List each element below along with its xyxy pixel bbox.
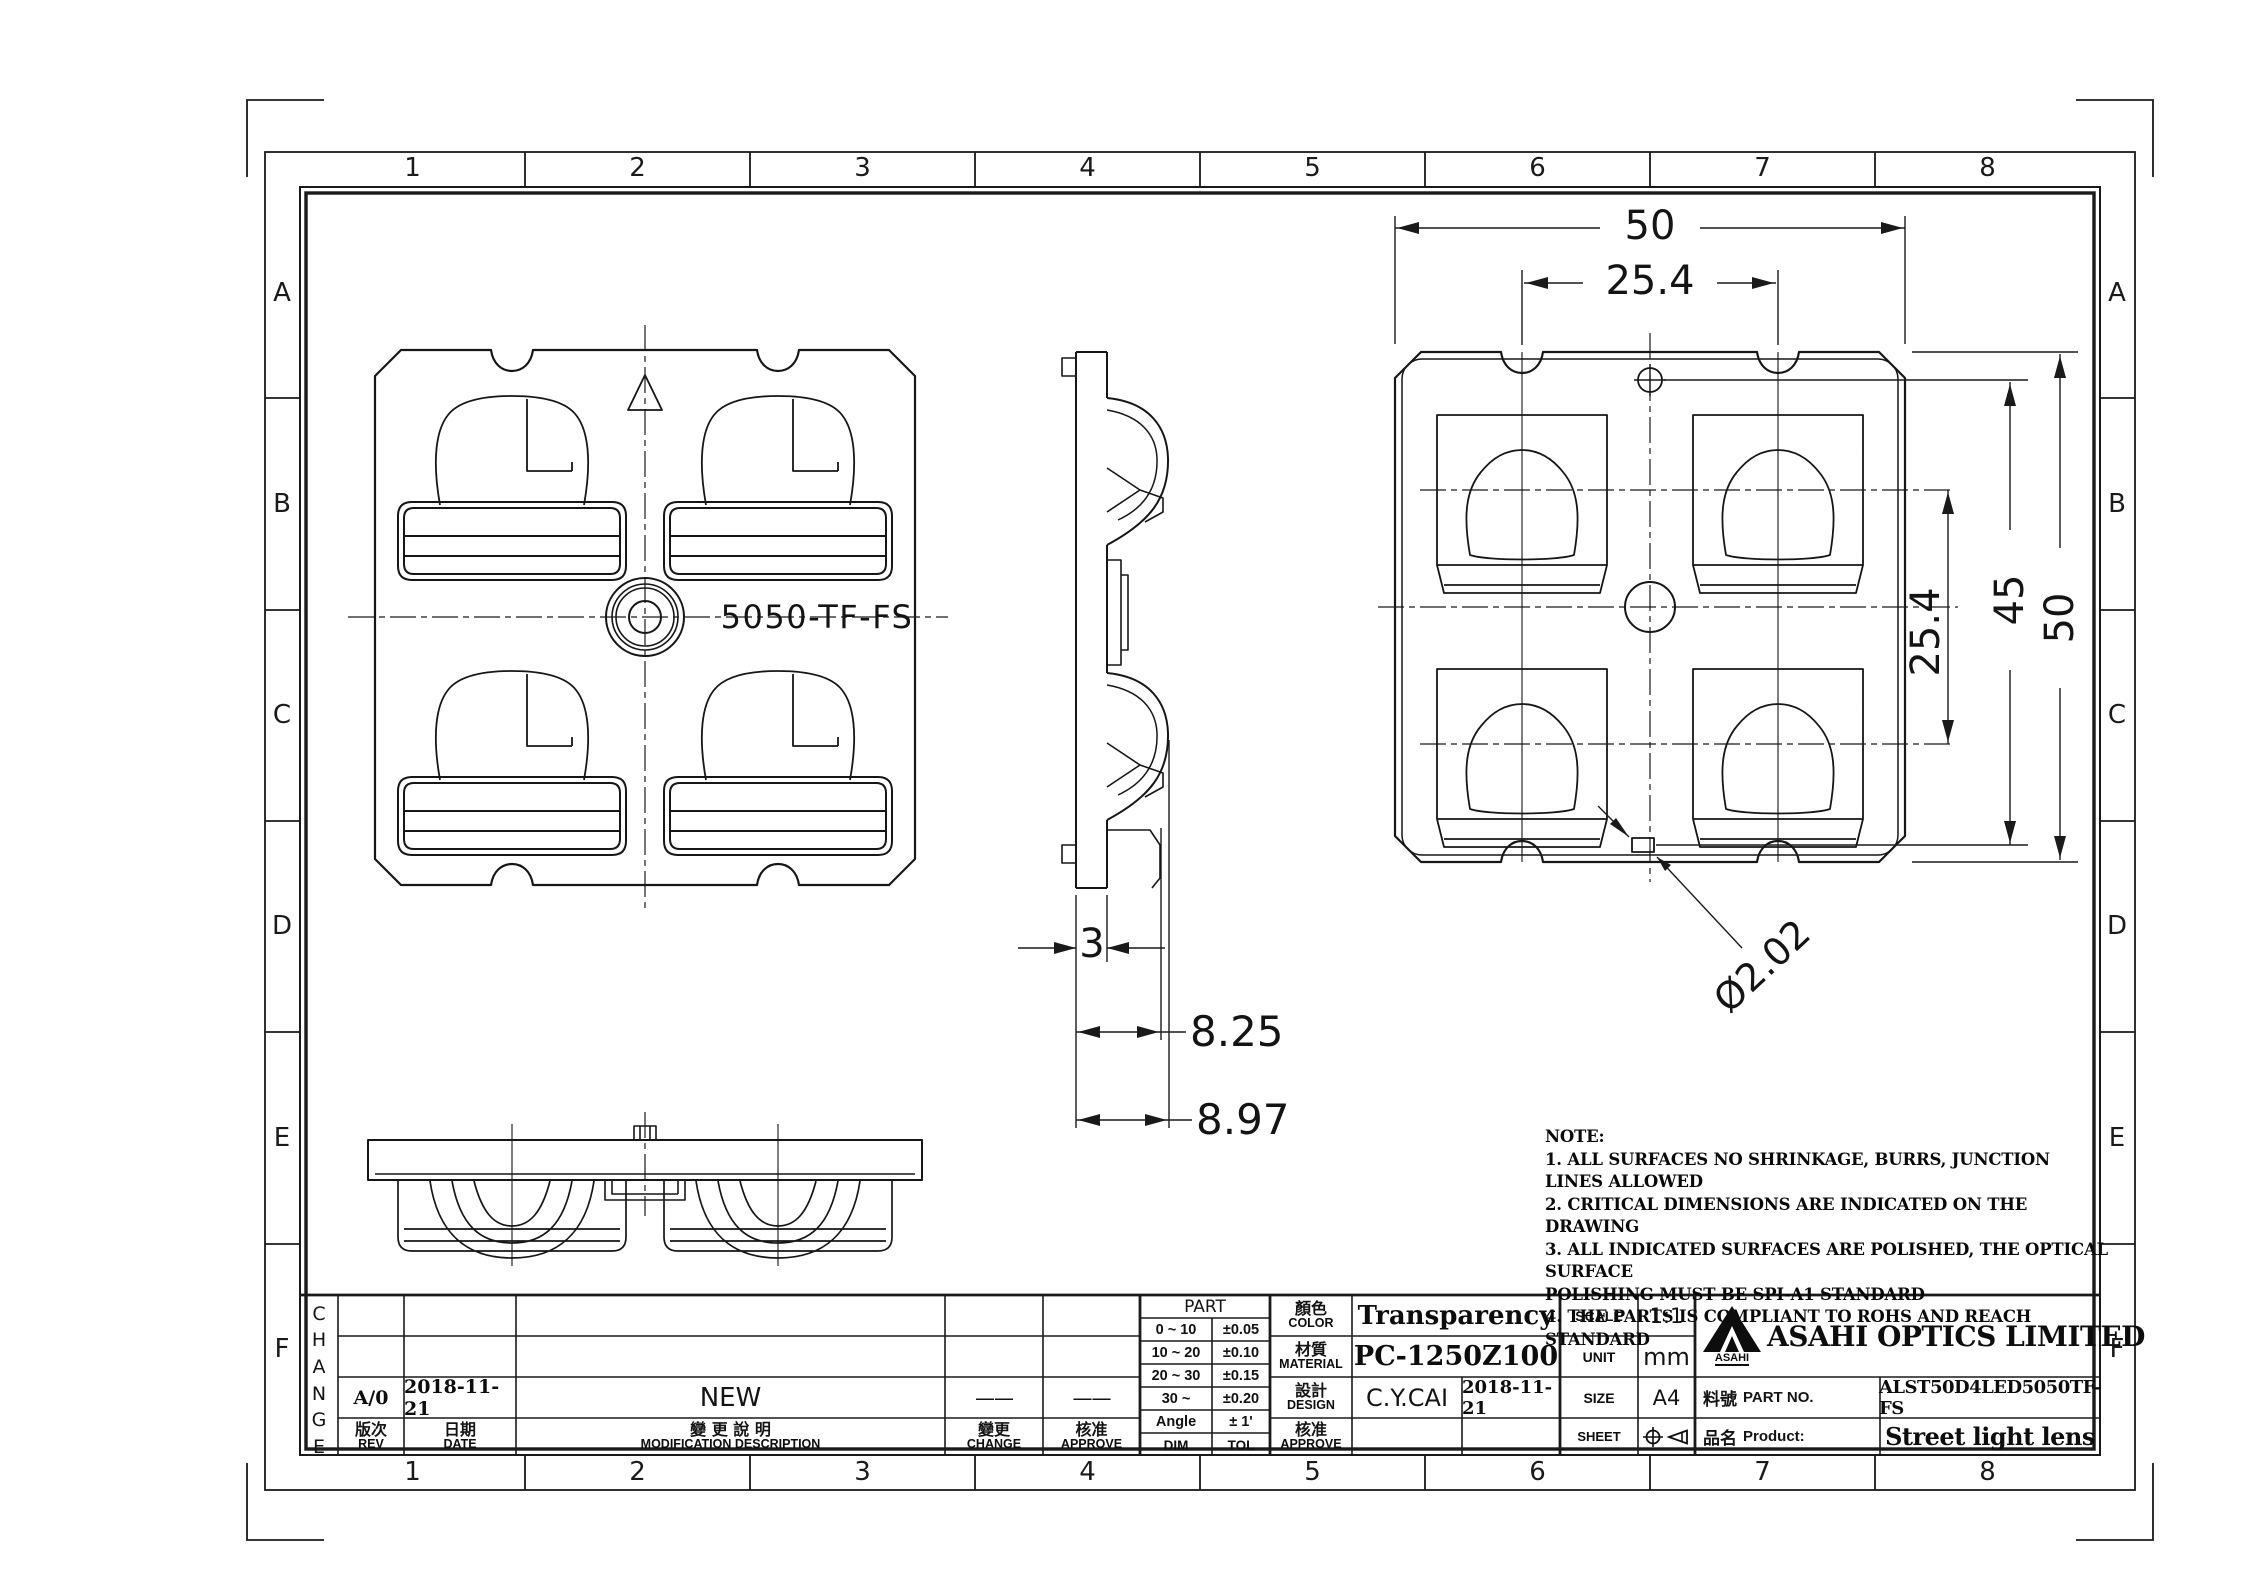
sheet-projection-symbols (1638, 1418, 1695, 1455)
tolerance-range: 30 ~ (1140, 1387, 1212, 1410)
tolerance-value: ±0.10 (1212, 1341, 1270, 1364)
material-label: 材質 MATERIAL (1270, 1336, 1352, 1377)
tolerance-range: 10 ~ 20 (1140, 1341, 1212, 1364)
mountain-logo-icon (1703, 1306, 1761, 1352)
front-view-part-label: 5050-TF-FS (698, 599, 936, 635)
note-line: 3. ALL INDICATED SURFACES ARE POLISHED, … (1545, 1239, 2110, 1284)
rev-header-zh: 版次 (355, 1422, 387, 1439)
tolerance-range: Angle (1140, 1410, 1212, 1433)
dim-pitch-horizontal: 25.4 (1583, 261, 1717, 301)
zone-column-label-top: 6 (1425, 149, 1650, 187)
zone-row-label-left: D (263, 821, 301, 1032)
zone-column-label-bottom: 1 (300, 1453, 525, 1491)
rev-header-en: REV (358, 1438, 384, 1451)
part-no-label: 料號 PART NO. (1695, 1377, 1880, 1418)
company-name: ASAHI OPTICS LIMITED (1767, 1320, 2145, 1353)
unit-value: mm (1638, 1336, 1695, 1377)
design-label-en: DESIGN (1287, 1399, 1335, 1412)
zone-column-label-top: 4 (975, 149, 1200, 187)
zone-column-label-top: 2 (525, 149, 750, 187)
zone-row-label-right: A (2098, 187, 2136, 398)
revision-header-change: 變更 CHANGE (945, 1418, 1043, 1455)
zone-column-label-bottom: 6 (1425, 1453, 1650, 1491)
design-label-zh: 設計 (1295, 1383, 1327, 1400)
tolerance-value: ±0.15 (1212, 1364, 1270, 1387)
product-value: Street light lens (1880, 1418, 2100, 1455)
notes-title: NOTE: (1545, 1126, 2110, 1149)
approve-name (1352, 1418, 1462, 1455)
change-header-zh: 變更 (978, 1422, 1010, 1439)
zone-column-label-bottom: 5 (1200, 1453, 1425, 1491)
approve-header-en: APPROVE (1061, 1438, 1122, 1451)
scale-label: SCALE (1560, 1295, 1638, 1336)
approve-label-zh: 核准 (1295, 1422, 1327, 1439)
change-letter: C (312, 1305, 325, 1324)
revision-header-approve: 核准 APPROVE (1043, 1418, 1140, 1455)
dim-step-depth: 8.25 (1190, 1008, 1330, 1054)
tolerance-range: 0 ~ 10 (1140, 1318, 1212, 1341)
tolerance-value: ±0.20 (1212, 1387, 1270, 1410)
projection-cone-icon (1667, 1429, 1691, 1445)
material-label-zh: 材質 (1295, 1342, 1327, 1359)
zone-row-label-right: B (2098, 398, 2136, 609)
dim-thickness: 3 (1072, 924, 1112, 964)
size-value: A4 (1638, 1377, 1695, 1418)
color-label-zh: 顏色 (1295, 1301, 1327, 1318)
desc-header-zh: 變 更 說 明 (690, 1422, 771, 1439)
revision-change: —— (945, 1377, 1043, 1418)
revision-rev: A/0 (338, 1377, 404, 1418)
projection-target-icon (1643, 1427, 1663, 1447)
logo-text: ASAHI (1715, 1352, 1749, 1366)
zone-column-label-top: 8 (1875, 149, 2100, 187)
zone-row-label-right: C (2098, 610, 2136, 821)
dim-overall-height: 50 (2042, 548, 2078, 688)
revision-approve: —— (1043, 1377, 1140, 1418)
zone-row-label-right: E (2098, 1032, 2136, 1243)
asahi-logo: ASAHI (1703, 1306, 1761, 1366)
engineering-drawing-sheet: 50 25.4 25.4 45 50 Ø2.02 3 8.25 8.97 505… (0, 0, 2245, 1586)
zone-column-label-top: 3 (750, 149, 975, 187)
approve-date (1462, 1418, 1560, 1455)
zone-row-label-right: D (2098, 821, 2136, 1032)
dim-overall-depth: 8.97 (1196, 1096, 1336, 1142)
zone-column-label-bottom: 4 (975, 1453, 1200, 1491)
change-letter: N (312, 1385, 326, 1404)
change-letter: A (313, 1358, 326, 1377)
date-header-zh: 日期 (444, 1422, 476, 1439)
part-no-label-en: PART NO. (1743, 1389, 1814, 1406)
material-value: PC-1250Z100 (1352, 1336, 1560, 1377)
approve-label-en: APPROVE (1280, 1438, 1341, 1451)
product-label-zh: 品名 (1703, 1424, 1737, 1449)
note-line: 2. CRITICAL DIMENSIONS ARE INDICATED ON … (1545, 1194, 2110, 1239)
color-label: 顏色 COLOR (1270, 1295, 1352, 1336)
dim-pitch-vertical: 25.4 (1908, 562, 1944, 702)
revision-header-rev: 版次 REV (338, 1418, 404, 1455)
zone-column-label-bottom: 2 (525, 1453, 750, 1491)
part-no-label-zh: 料號 (1703, 1385, 1737, 1410)
change-column: CHANGE (300, 1295, 338, 1467)
revision-header-date: 日期 DATE (404, 1418, 516, 1455)
revision-header-description: 變 更 說 明 MODIFICATION DESCRIPTION (516, 1418, 945, 1455)
tolerance-value: ±0.05 (1212, 1318, 1270, 1341)
part-no-value: ALST50D4LED5050TF-FS (1880, 1377, 2100, 1418)
date-header-en: DATE (443, 1438, 476, 1451)
tolerance-range: 20 ~ 30 (1140, 1364, 1212, 1387)
zone-column-label-bottom: 7 (1650, 1453, 1875, 1491)
product-label: 品名 Product: (1695, 1418, 1880, 1455)
desc-header-en: MODIFICATION DESCRIPTION (641, 1438, 821, 1451)
note-line: 1. ALL SURFACES NO SHRINKAGE, BURRS, JUN… (1545, 1149, 2110, 1194)
scale-value: 1:1 (1638, 1295, 1695, 1336)
change-letter: H (312, 1331, 326, 1350)
revision-date: 2018-11-21 (404, 1377, 516, 1418)
zone-row-label-left: F (263, 1244, 301, 1455)
design-date: 2018-11-21 (1462, 1377, 1560, 1418)
product-label-en: Product: (1743, 1428, 1805, 1445)
zone-column-label-bottom: 8 (1875, 1453, 2100, 1491)
part-tolerance-table: PART DIM TOL 0 ~ 10±0.0510 ~ 20±0.1020 ~… (1140, 1295, 1270, 1457)
size-label: SIZE (1560, 1377, 1638, 1418)
change-letter: G (312, 1411, 327, 1430)
design-name: C.Y.CAI (1352, 1377, 1462, 1418)
zone-column-label-top: 1 (300, 149, 525, 187)
zone-row-label-left: B (263, 398, 301, 609)
zone-column-label-bottom: 3 (750, 1453, 975, 1491)
dim-hole-distance: 45 (1992, 530, 2028, 670)
dim-overall-width: 50 (1600, 206, 1700, 246)
approve-header-zh: 核准 (1075, 1422, 1107, 1439)
approve-label: 核准 APPROVE (1270, 1418, 1352, 1455)
color-label-en: COLOR (1288, 1317, 1333, 1330)
unit-label: UNIT (1560, 1336, 1638, 1377)
tolerance-title: PART (1140, 1295, 1270, 1318)
tolerance-value: ± 1' (1212, 1410, 1270, 1433)
change-header-en: CHANGE (967, 1438, 1021, 1451)
zone-row-label-left: A (263, 187, 301, 398)
zone-row-label-right: F (2098, 1244, 2136, 1455)
sheet-label: SHEET (1560, 1418, 1638, 1455)
zone-row-label-left: C (263, 610, 301, 821)
revision-description: NEW (516, 1377, 945, 1418)
zone-row-label-left: E (263, 1032, 301, 1243)
design-label: 設計 DESIGN (1270, 1377, 1352, 1418)
material-label-en: MATERIAL (1279, 1358, 1343, 1371)
color-value: Transparency (1352, 1295, 1560, 1336)
company-cell: ASAHI ASAHI OPTICS LIMITED (1695, 1295, 2100, 1377)
zone-column-label-top: 7 (1650, 149, 1875, 187)
zone-column-label-top: 5 (1200, 149, 1425, 187)
